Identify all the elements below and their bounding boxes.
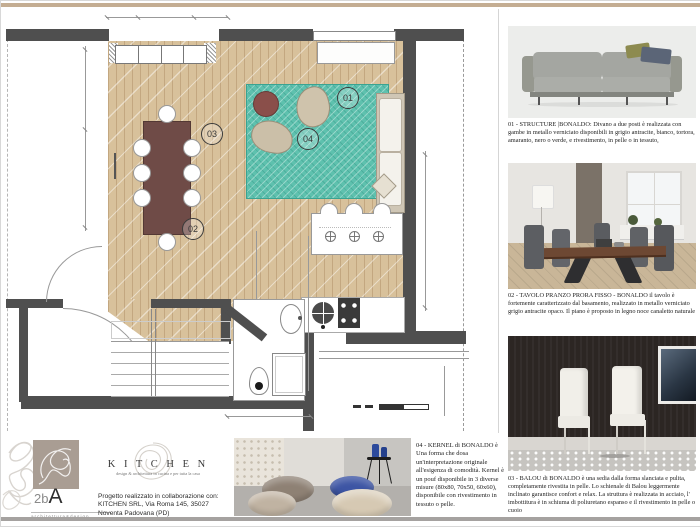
plan-label-text: 03 (207, 129, 217, 139)
pouf-round-plan (253, 91, 279, 117)
pouf-beige (248, 491, 296, 516)
plan-label-text: 01 (343, 93, 353, 103)
chair-plan (133, 139, 151, 157)
sheet-edge-right (498, 9, 499, 433)
scale-bar (379, 404, 429, 410)
dim-line-botright-2 (319, 358, 469, 359)
window-frame (115, 45, 207, 64)
door-arc-terrace (46, 246, 102, 302)
chair-plan (158, 233, 176, 251)
kitchen-logo-tagline: design & architettura in cucina e per tu… (98, 471, 218, 476)
dim-line-right-room (425, 151, 426, 311)
dim-line-stair-vert (256, 231, 257, 299)
floor-plan: 01 02 03 04 (1, 9, 501, 433)
vase-blue (372, 444, 379, 458)
sofa-seat-cushion (602, 77, 670, 93)
cabinet-top (317, 42, 395, 64)
dim-line-top (106, 17, 228, 18)
design-board: 01 02 03 04 01 - STRUCTURE |BONALDO: Div… (0, 0, 700, 527)
product-photo-chairs (508, 336, 696, 471)
product-caption-04: 04 - KERNEL di BONALDO è Una forma che d… (416, 442, 504, 509)
chair-plan (183, 139, 201, 157)
chair-plan (133, 164, 151, 182)
logo-2ba-text: 2bA (34, 485, 94, 511)
chair-plan (183, 164, 201, 182)
sink-tap-dot (321, 325, 325, 329)
plan-label-04: 04 (297, 128, 319, 150)
product-caption-02: 02 - TAVOLO PRANZO PRORA FISSO - BONALDO… (508, 292, 696, 316)
floor-lamp (532, 185, 554, 209)
logo-2ba-suffix: A (48, 485, 62, 508)
sheet-edge-left (7, 29, 8, 431)
dim-line-mid-vert (308, 236, 309, 391)
sofa-base (530, 92, 674, 97)
wall-top-mid (219, 29, 313, 41)
footer-logo-area: 2bA architettura&design K I T C H E N de… (1, 433, 233, 521)
island-symbol-icon (349, 231, 360, 242)
island-symbol-icon (373, 231, 384, 242)
sofa-back-cushion (533, 52, 602, 80)
sofa-cushion-plan (379, 98, 402, 152)
chair-plan (158, 105, 176, 123)
white-chair (612, 366, 642, 420)
shower-symbol-icon (272, 353, 306, 396)
window-glazing (313, 31, 396, 41)
product-caption-03: 03 - BALOU di BONALDO è una sedia dalla … (508, 475, 696, 515)
island-symbol-icon (325, 231, 336, 242)
scale-bar (365, 405, 373, 408)
pillow-blue (640, 46, 671, 64)
cooktop-symbol-icon (338, 298, 360, 328)
dim-line-left (85, 46, 86, 231)
logo-2ba-square (33, 440, 79, 489)
kitchen-logo-name: K I T C H E N (98, 459, 218, 470)
dim-line-bottom (226, 416, 311, 417)
island-detail-line (319, 227, 391, 228)
wall-left-lower (19, 307, 28, 402)
bath-tap-dot (298, 316, 302, 320)
stairs-plan (111, 341, 229, 397)
pouf-cream (332, 489, 392, 516)
table-top-walnut (544, 246, 666, 259)
chair-plan (133, 189, 151, 207)
plant (628, 215, 638, 225)
top-accent-strip (1, 3, 700, 7)
door-pivot-line (114, 153, 116, 179)
plan-label-01: 01 (337, 87, 359, 109)
wall-art-frame (658, 346, 696, 404)
plan-label-02: 02 (182, 218, 204, 240)
product-photo-sofa (508, 26, 696, 118)
dim-line-botright-1 (319, 351, 469, 352)
product-photo-table (508, 163, 696, 289)
table-objects (596, 239, 612, 247)
plan-label-text: 02 (188, 224, 198, 234)
stool-plan (345, 203, 363, 214)
boundary-dashed-line (463, 39, 464, 431)
wall-top-left (6, 29, 109, 41)
dim-line-botright-vert (444, 366, 445, 416)
toilet-symbol-icon (249, 367, 269, 395)
rug-dotted (508, 450, 696, 471)
bottom-divider (1, 517, 700, 521)
plan-label-03: 03 (201, 123, 223, 145)
stairs-landing-line (111, 321, 231, 339)
collaboration-text: Progetto realizzato in collaborazione co… (98, 493, 233, 518)
round-sink-symbol-icon (312, 302, 334, 324)
logo-2ba-prefix: 2b (34, 491, 48, 506)
stool-plan (320, 203, 338, 214)
product-photo-poufs (234, 438, 411, 516)
product-caption-01: 01 - STRUCTURE |BONALDO: Divano a due po… (508, 121, 696, 145)
sofa-seat-cushion (534, 77, 602, 93)
chair-dark (524, 225, 544, 269)
stool-plan (373, 203, 391, 214)
toilet-dot (255, 382, 263, 390)
plan-label-text: 04 (303, 134, 313, 144)
scale-bar (353, 405, 361, 408)
chair-plan (183, 189, 201, 207)
wall-entry-right (151, 299, 231, 308)
white-chair (560, 368, 588, 422)
